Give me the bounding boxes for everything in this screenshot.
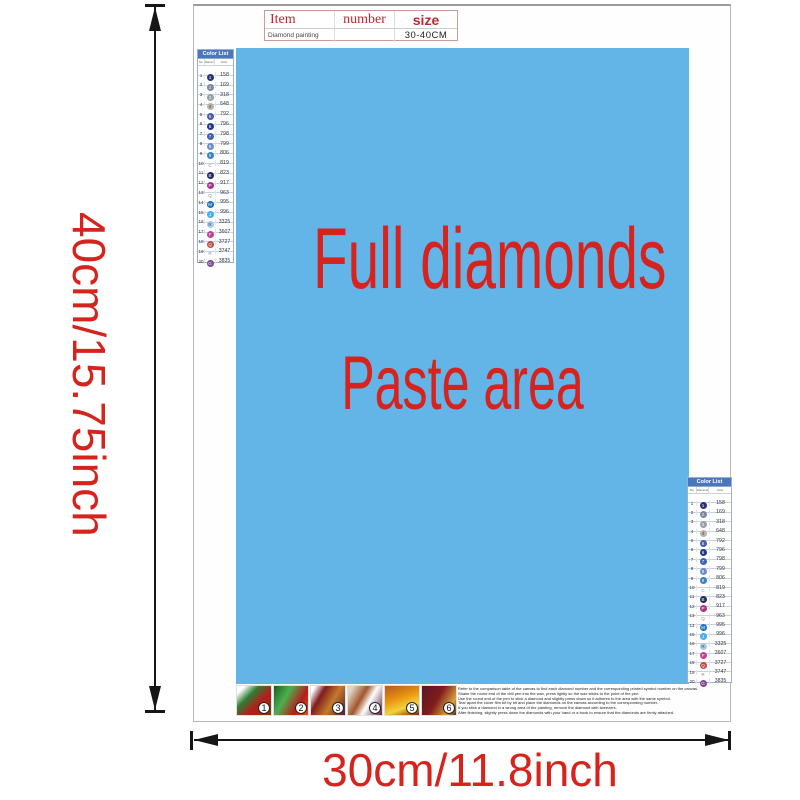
color-list-right: Color List No. Diamond Color 11158221693… <box>687 477 732 683</box>
color-code: 3727 <box>215 239 233 245</box>
color-code: 3727 <box>709 660 731 666</box>
color-code: 792 <box>215 111 233 117</box>
color-number: 2 <box>198 82 205 87</box>
color-number: 4 <box>688 529 697 534</box>
color-number: 10 <box>198 161 205 166</box>
color-number: 18 <box>198 239 205 244</box>
step-number-badge: 5 <box>406 702 418 714</box>
color-number: 15 <box>198 210 205 215</box>
color-number: 12 <box>198 180 205 185</box>
color-code: 318 <box>215 92 233 98</box>
color-number: 12 <box>688 604 697 609</box>
color-code: 3835 <box>215 258 233 264</box>
paste-area: Full diamonds Paste area <box>236 48 689 684</box>
color-code: 169 <box>215 82 233 88</box>
color-number: 16 <box>198 219 205 224</box>
step-thumbnails: 123456 <box>236 685 457 716</box>
step-thumbnail: 5 <box>384 685 420 716</box>
color-number: 10 <box>688 585 697 590</box>
color-code: 3747 <box>709 669 731 675</box>
dimension-line <box>154 6 156 712</box>
color-code: 963 <box>215 190 233 196</box>
color-code: 158 <box>215 72 233 78</box>
color-code: 996 <box>709 631 731 637</box>
color-list-col-color: Color <box>709 487 731 493</box>
color-number: 3 <box>198 92 205 97</box>
color-code: 792 <box>709 538 731 544</box>
item-table-header-size: size <box>395 11 457 29</box>
color-code: 3325 <box>215 219 233 225</box>
step-thumbnail: 2 <box>273 685 309 716</box>
color-list-col-diamond: Diamond <box>205 59 215 65</box>
step-number-badge: 1 <box>258 702 270 714</box>
color-code: 995 <box>215 199 233 205</box>
step-thumbnail: 1 <box>236 685 272 716</box>
item-table-value-size: 30-40CM <box>395 29 457 42</box>
product-sheet: Item number size Diamond painting 30-40C… <box>193 4 731 722</box>
step-number-badge: 3 <box>332 702 344 714</box>
color-list-col-color: Color <box>215 59 233 65</box>
product-image: 40cm/15.75inch 30cm/11.8inch Item number… <box>0 0 800 800</box>
color-code: 823 <box>215 170 233 176</box>
color-code: 806 <box>215 150 233 156</box>
color-list-col-diamond: Diamond <box>697 487 709 493</box>
color-number: 9 <box>198 151 205 156</box>
color-number: 6 <box>198 121 205 126</box>
color-list-row: 11158 <box>198 66 233 76</box>
color-number: 20 <box>198 259 205 264</box>
color-number: 13 <box>688 613 697 618</box>
color-number: 7 <box>688 557 697 562</box>
color-number: 15 <box>688 632 697 637</box>
color-number: 19 <box>688 670 697 675</box>
color-list-col-no: No. <box>198 59 205 65</box>
color-list-title: Color List <box>198 50 233 59</box>
color-code: 3747 <box>215 248 233 254</box>
color-code: 169 <box>709 509 731 515</box>
color-number: 2 <box>688 510 697 515</box>
color-number: 13 <box>198 190 205 195</box>
color-code: 917 <box>709 603 731 609</box>
color-code: 819 <box>215 160 233 166</box>
color-number: 20 <box>688 679 697 684</box>
color-number: 4 <box>198 102 205 107</box>
color-code: 3325 <box>709 641 731 647</box>
arrowhead-left-icon <box>194 734 218 746</box>
arrowhead-right-icon <box>705 734 729 746</box>
dimension-line <box>194 739 728 741</box>
color-code: 318 <box>709 519 731 525</box>
color-number: 5 <box>198 112 205 117</box>
height-dimension-label: 40cm/15.75inch <box>58 188 120 560</box>
step-number-badge: 2 <box>295 702 307 714</box>
dimension-cap <box>145 710 165 713</box>
item-table-value-item: Diamond painting <box>265 29 335 42</box>
color-code: 798 <box>709 556 731 562</box>
color-code: 799 <box>709 566 731 572</box>
step-thumbnail: 4 <box>347 685 383 716</box>
color-list-row: 11158 <box>688 494 731 503</box>
color-code: 806 <box>709 575 731 581</box>
color-number: 7 <box>198 131 205 136</box>
color-number: 6 <box>688 547 697 552</box>
color-code: 819 <box>709 585 731 591</box>
color-list-col-no: No. <box>688 487 697 493</box>
paste-area-text: Paste area <box>313 346 612 422</box>
step-number-badge: 4 <box>369 702 381 714</box>
diamond-symbol-icon: G <box>205 252 215 270</box>
item-table: Item number size Diamond painting 30-40C… <box>264 10 458 41</box>
color-code: 995 <box>709 622 731 628</box>
width-dimension-label: 30cm/11.8inch <box>280 743 660 797</box>
color-list-columns: No. Diamond Color <box>198 59 233 66</box>
color-number: 8 <box>198 141 205 146</box>
color-number: 16 <box>688 641 697 646</box>
color-code: 796 <box>709 547 731 553</box>
color-code: 3607 <box>709 650 731 656</box>
item-table-value-number <box>335 29 395 42</box>
color-number: 17 <box>198 229 205 234</box>
color-code: 3835 <box>709 678 731 684</box>
instruction-line: After finishing, slightly press down the… <box>458 711 728 716</box>
color-number: 14 <box>198 200 205 205</box>
item-table-header-item: Item <box>265 11 335 29</box>
color-list-rows: 1115822169333184464855792667967779888799… <box>688 494 731 682</box>
color-number: 18 <box>688 660 697 665</box>
color-code: 917 <box>215 180 233 186</box>
instructions: Refer to the comparison table of the can… <box>458 687 728 717</box>
color-list-columns: No. Diamond Color <box>688 487 731 494</box>
color-list-title: Color List <box>688 478 731 487</box>
color-number: 3 <box>688 519 697 524</box>
dimension-cap <box>728 731 731 750</box>
full-diamonds-text: Full diamonds <box>313 216 612 302</box>
color-code: 963 <box>709 613 731 619</box>
color-number: 17 <box>688 651 697 656</box>
step-number-badge: 6 <box>443 702 455 714</box>
item-table-header-number: number <box>335 11 395 29</box>
color-code: 823 <box>709 594 731 600</box>
step-thumbnail: 3 <box>310 685 346 716</box>
color-code: 796 <box>215 121 233 127</box>
color-number: 11 <box>688 594 697 599</box>
color-code: 648 <box>215 101 233 107</box>
color-number: 1 <box>198 73 205 78</box>
color-number: 11 <box>198 170 205 175</box>
color-code: 158 <box>709 500 731 506</box>
dimension-cap <box>190 731 193 750</box>
color-number: 1 <box>688 501 697 506</box>
color-code: 799 <box>215 141 233 147</box>
color-list-rows: 1115822169333184464855792667967779888799… <box>198 66 233 262</box>
color-code: 798 <box>215 131 233 137</box>
color-list-left: Color List No. Diamond Color 11158221693… <box>197 49 234 263</box>
color-number: 19 <box>198 249 205 254</box>
step-thumbnail: 6 <box>421 685 457 716</box>
arrowhead-down-icon <box>149 686 161 710</box>
color-number: 14 <box>688 623 697 628</box>
color-number: 5 <box>688 538 697 543</box>
color-code: 3607 <box>215 229 233 235</box>
color-code: 996 <box>215 209 233 215</box>
color-number: 8 <box>688 566 697 571</box>
color-code: 648 <box>709 528 731 534</box>
color-number: 9 <box>688 576 697 581</box>
arrowhead-up-icon <box>149 7 161 31</box>
